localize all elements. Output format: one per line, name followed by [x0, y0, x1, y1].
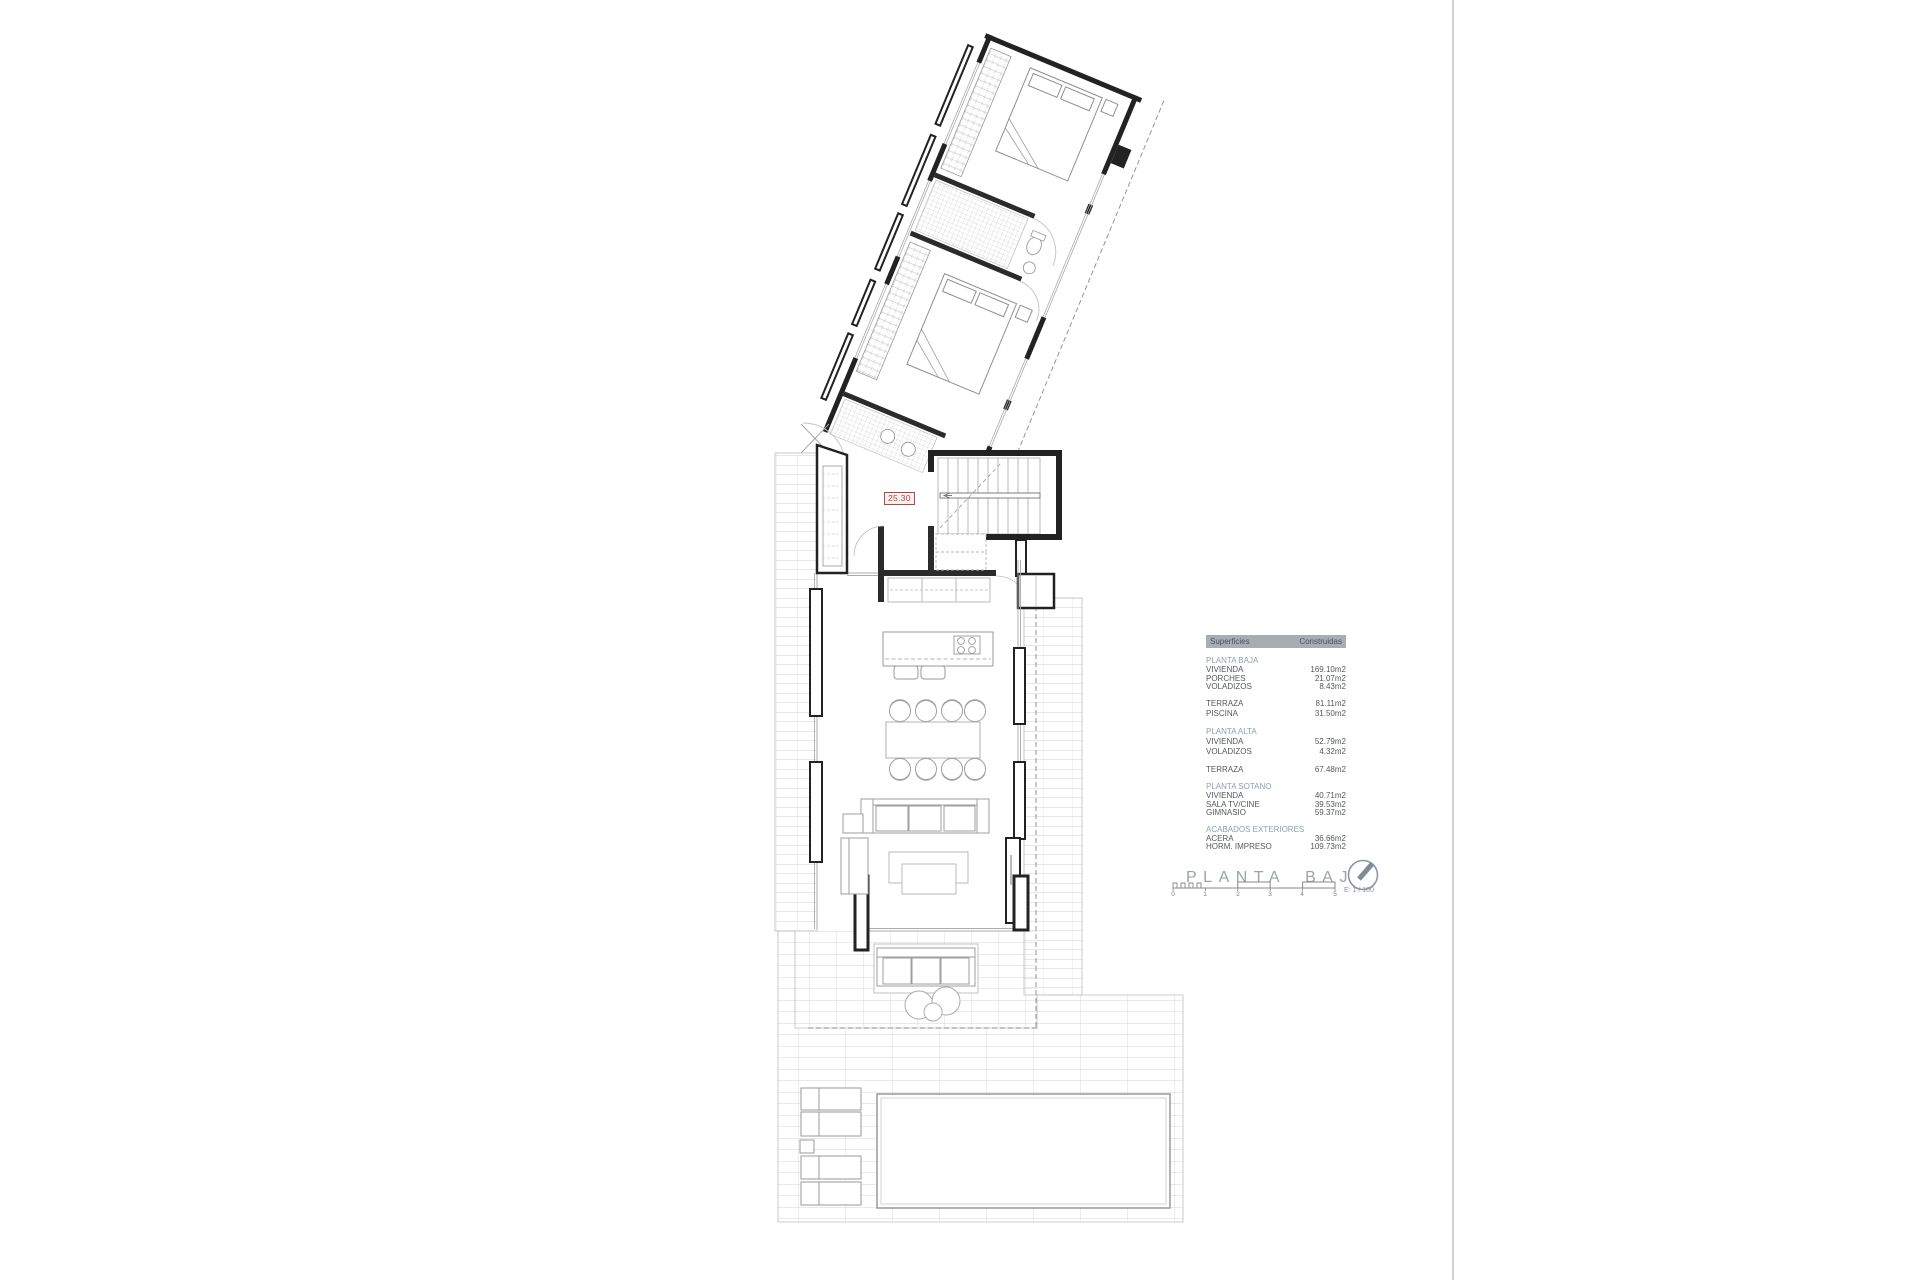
row-value: 4.32m2 [1319, 747, 1346, 758]
dining-chair [916, 700, 937, 722]
table-section: TERRAZA67.48m2 [1206, 765, 1346, 776]
wall-pier [1014, 648, 1025, 724]
lounger-table [800, 1140, 814, 1153]
scale-tick: 2 [1233, 891, 1243, 898]
row-value: 52.79m2 [1315, 737, 1346, 748]
row-label: VOLADIZOS [1206, 683, 1252, 692]
dining-chairs-top [890, 700, 986, 722]
row-value: 81.11m2 [1315, 699, 1346, 710]
table-row: TERRAZA81.11m2 [1206, 699, 1346, 710]
section-title: PLANTA ALTA [1206, 727, 1346, 736]
column-header-construidas: Construidas [1299, 637, 1342, 646]
pouf [924, 1003, 942, 1021]
row-label: TERRAZA [1206, 765, 1243, 776]
row-label: VOLADIZOS [1206, 747, 1252, 758]
table-row: VOLADIZOS4.32m2 [1206, 747, 1346, 758]
sun-lounger [801, 1182, 861, 1205]
table-row: HORM. IMPRESO109.73m2 [1206, 843, 1346, 852]
areas-table: Superficies Construidas PLANTA BAJA VIVI… [1206, 635, 1346, 852]
dining-chair [890, 759, 911, 781]
dining-chairs-bottom [890, 759, 986, 781]
table-section: PLANTA SOTANO VIVIENDA40.71m2 SALA TV/CI… [1206, 782, 1346, 818]
wall-pier [810, 762, 822, 862]
table-row: VIVIENDA52.79m2 [1206, 737, 1346, 748]
pool [877, 1094, 1170, 1208]
column-header-superficies: Superficies [1210, 637, 1250, 646]
row-value: 67.48m2 [1315, 765, 1346, 776]
table-section: TERRAZA81.11m2 PISCINA31.50m2 [1206, 699, 1346, 720]
sun-lounger [801, 1156, 861, 1179]
row-label: HORM. IMPRESO [1206, 843, 1272, 852]
dining-table [886, 722, 980, 758]
kitchen-island [883, 632, 993, 679]
row-value: 8.43m2 [1319, 683, 1346, 692]
table-section: ACABADOS EXTERIORES ACERA36.66m2 HORM. I… [1206, 825, 1346, 852]
row-value: 109.73m2 [1310, 843, 1346, 852]
section-title: ACABADOS EXTERIORES [1206, 825, 1346, 834]
sofa-set [841, 799, 989, 894]
scale-bar: 0 1 2 3 4 5 E: 1 / 100 [1168, 878, 1418, 906]
section-title: PLANTA BAJA [1206, 656, 1346, 665]
dining-chair [965, 759, 986, 781]
wall-pier [1014, 876, 1028, 930]
table-row: VOLADIZOS8.43m2 [1206, 683, 1346, 692]
row-label: PISCINA [1206, 709, 1238, 720]
scale-tick: 0 [1168, 891, 1178, 898]
wall-pier [1014, 762, 1025, 839]
dining-chair [916, 759, 937, 781]
row-value: 31.50m2 [1315, 709, 1346, 720]
scale-tick: 4 [1297, 891, 1307, 898]
page-divider-line [1452, 0, 1454, 1280]
scale-tick: 3 [1265, 891, 1275, 898]
entry-pier [817, 445, 847, 573]
table-row: GIMNASIO59.37m2 [1206, 809, 1346, 818]
table-section: PLANTA ALTA VIVIENDA52.79m2 VOLADIZOS4.3… [1206, 727, 1346, 758]
table-row: TERRAZA67.48m2 [1206, 765, 1346, 776]
stool [921, 666, 945, 679]
sun-lounger [801, 1112, 861, 1136]
hob-symbol [954, 636, 980, 654]
handrail [940, 493, 1040, 498]
page: 25.30 Superficies Construidas PLANTA BAJ… [0, 0, 1920, 1280]
sofa [861, 799, 989, 833]
wall-pier [1016, 540, 1026, 576]
coffee-table [889, 852, 968, 894]
level-label: 25.30 [884, 492, 915, 505]
row-label: GIMNASIO [1206, 809, 1246, 818]
row-label: VIVIENDA [1206, 737, 1243, 748]
outdoor-sofa [874, 944, 978, 993]
table-row: PISCINA31.50m2 [1206, 709, 1346, 720]
dining-set [886, 700, 986, 781]
stool [894, 666, 918, 679]
stairs [928, 450, 1062, 540]
hall-cabinets [888, 534, 990, 602]
sun-lounger [801, 1088, 861, 1110]
dining-chair [965, 700, 986, 722]
closet [1018, 574, 1054, 608]
dining-chair [942, 700, 963, 722]
table-section: PLANTA BAJA VIVIENDA169.10m2 PORCHES21.0… [1206, 656, 1346, 692]
scale-text: E: 1 / 100 [1344, 887, 1374, 894]
row-value: 59.37m2 [1315, 809, 1346, 818]
scale-tick: 5 [1330, 891, 1340, 898]
dining-chair [890, 700, 911, 722]
armchair [841, 838, 868, 894]
dining-chair [942, 759, 963, 781]
wall-pier [810, 589, 822, 716]
section-title: PLANTA SOTANO [1206, 782, 1346, 791]
scale-tick: 1 [1200, 891, 1210, 898]
floor-plan [0, 0, 1920, 1280]
upper-wing [809, 23, 1164, 505]
table-header: Superficies Construidas [1206, 635, 1346, 648]
row-label: TERRAZA [1206, 699, 1243, 710]
side-table [843, 814, 863, 833]
